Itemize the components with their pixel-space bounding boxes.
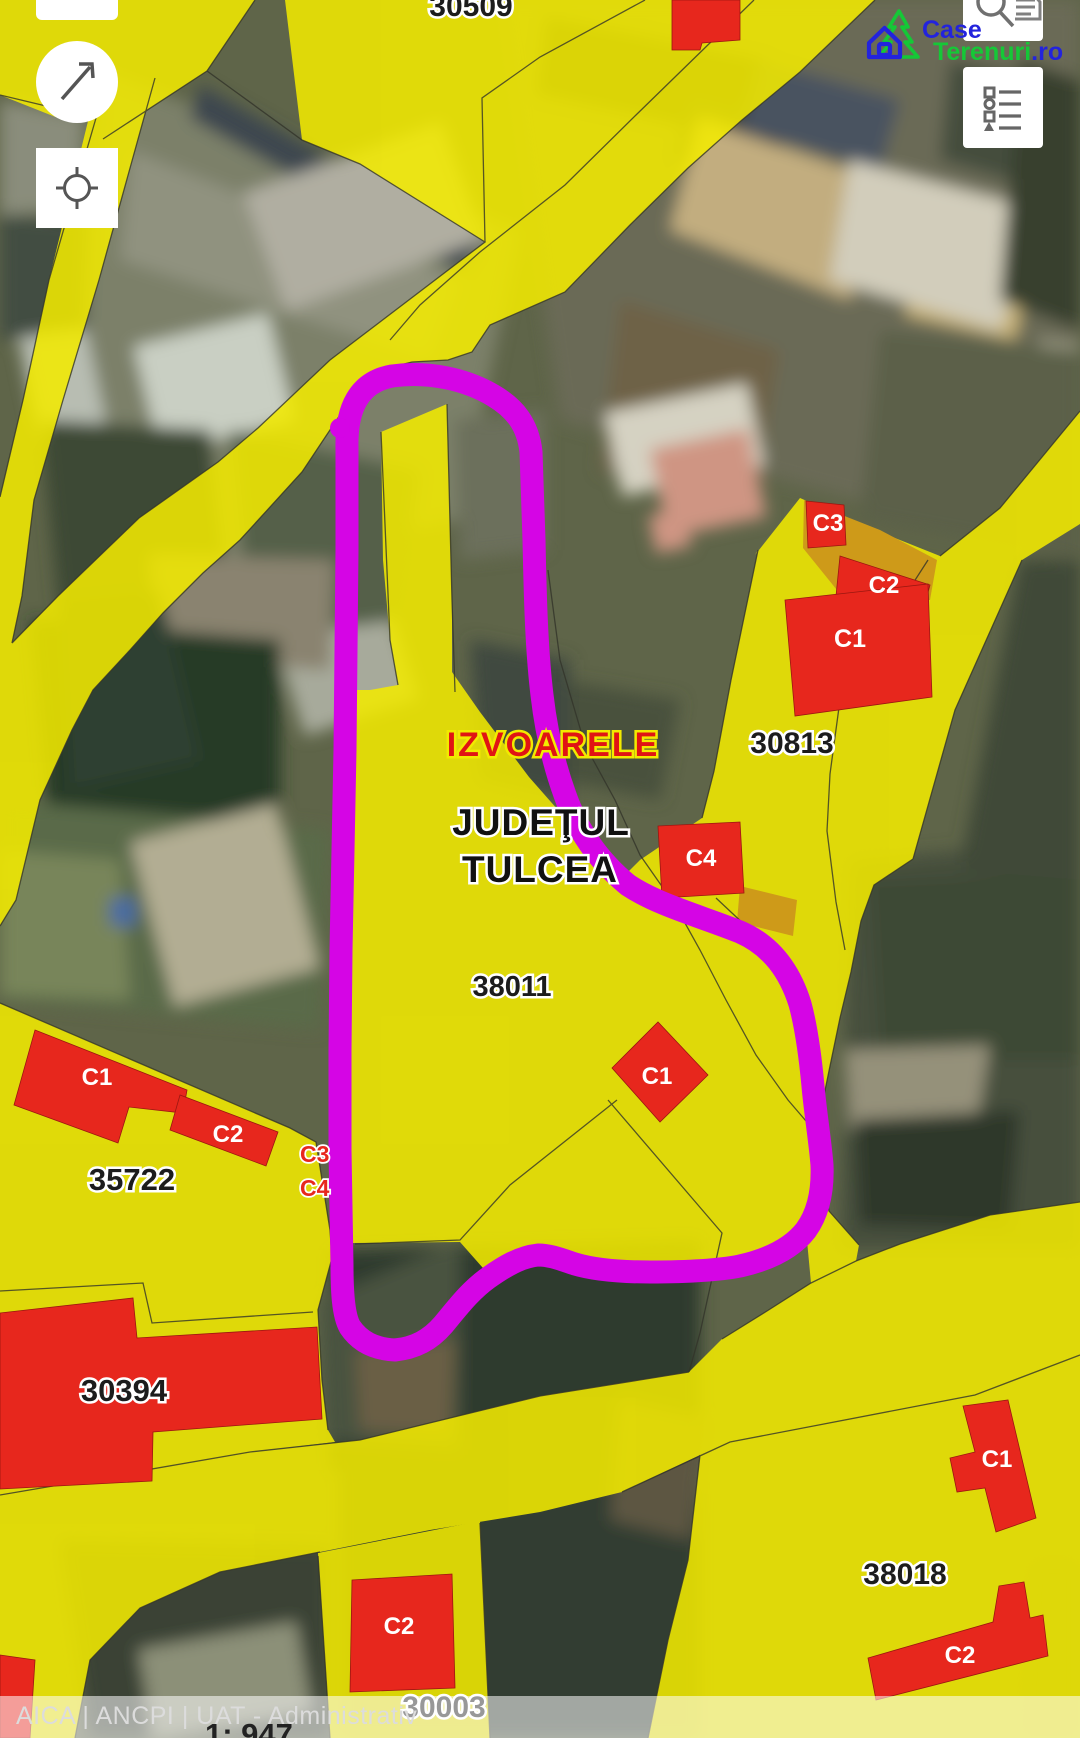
- svg-text:38011: 38011: [472, 971, 551, 1003]
- svg-text:C1: C1: [82, 1064, 113, 1091]
- svg-text:30813: 30813: [750, 727, 833, 760]
- svg-text:C3: C3: [300, 1141, 329, 1167]
- svg-text:35722: 35722: [89, 1162, 175, 1197]
- svg-text:C4: C4: [686, 845, 717, 872]
- svg-text:C3: C3: [813, 510, 844, 537]
- svg-text:C4: C4: [300, 1175, 330, 1201]
- svg-text:Terenuri.ro: Terenuri.ro: [933, 38, 1063, 66]
- svg-text:30394: 30394: [81, 1373, 168, 1408]
- svg-text:TULCEA: TULCEA: [462, 849, 618, 890]
- svg-text:30509: 30509: [429, 0, 512, 23]
- svg-text:C2: C2: [384, 1613, 415, 1640]
- svg-text:C2: C2: [213, 1121, 244, 1148]
- svg-text:IZVOARELE: IZVOARELE: [447, 726, 660, 764]
- svg-text:1: 947: 1: 947: [205, 1717, 293, 1738]
- svg-text:C1: C1: [982, 1446, 1013, 1473]
- svg-text:C1: C1: [834, 625, 866, 653]
- svg-text:38018: 38018: [863, 1558, 946, 1591]
- svg-text:C2: C2: [869, 572, 900, 599]
- svg-text:C1: C1: [642, 1063, 673, 1090]
- svg-text:C2: C2: [945, 1642, 976, 1669]
- svg-text:JUDEŢUL: JUDEŢUL: [452, 802, 630, 843]
